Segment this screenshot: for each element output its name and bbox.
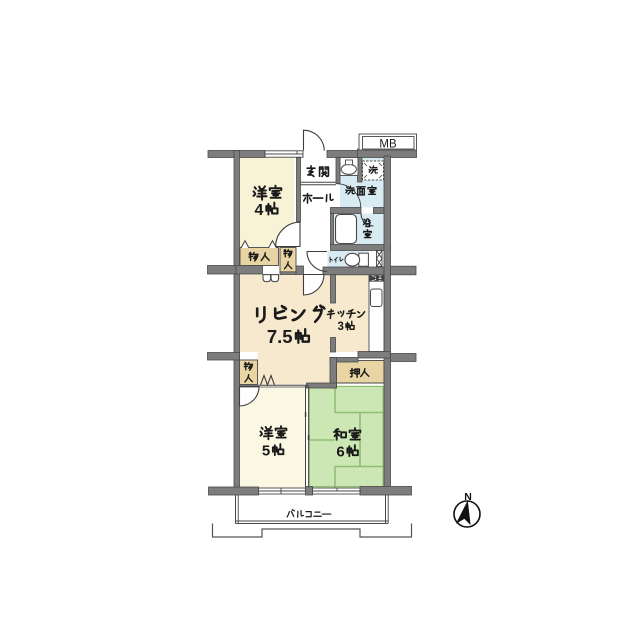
svg-text:5: 5 — [282, 326, 292, 347]
svg-text:7: 7 — [267, 326, 277, 347]
svg-text:4: 4 — [255, 202, 264, 219]
svg-text:6: 6 — [336, 443, 344, 460]
svg-text:N: N — [464, 491, 472, 503]
svg-text:M: M — [379, 138, 389, 150]
svg-text:3: 3 — [338, 321, 344, 333]
svg-text:5: 5 — [262, 442, 270, 459]
svg-text:B: B — [389, 138, 397, 150]
